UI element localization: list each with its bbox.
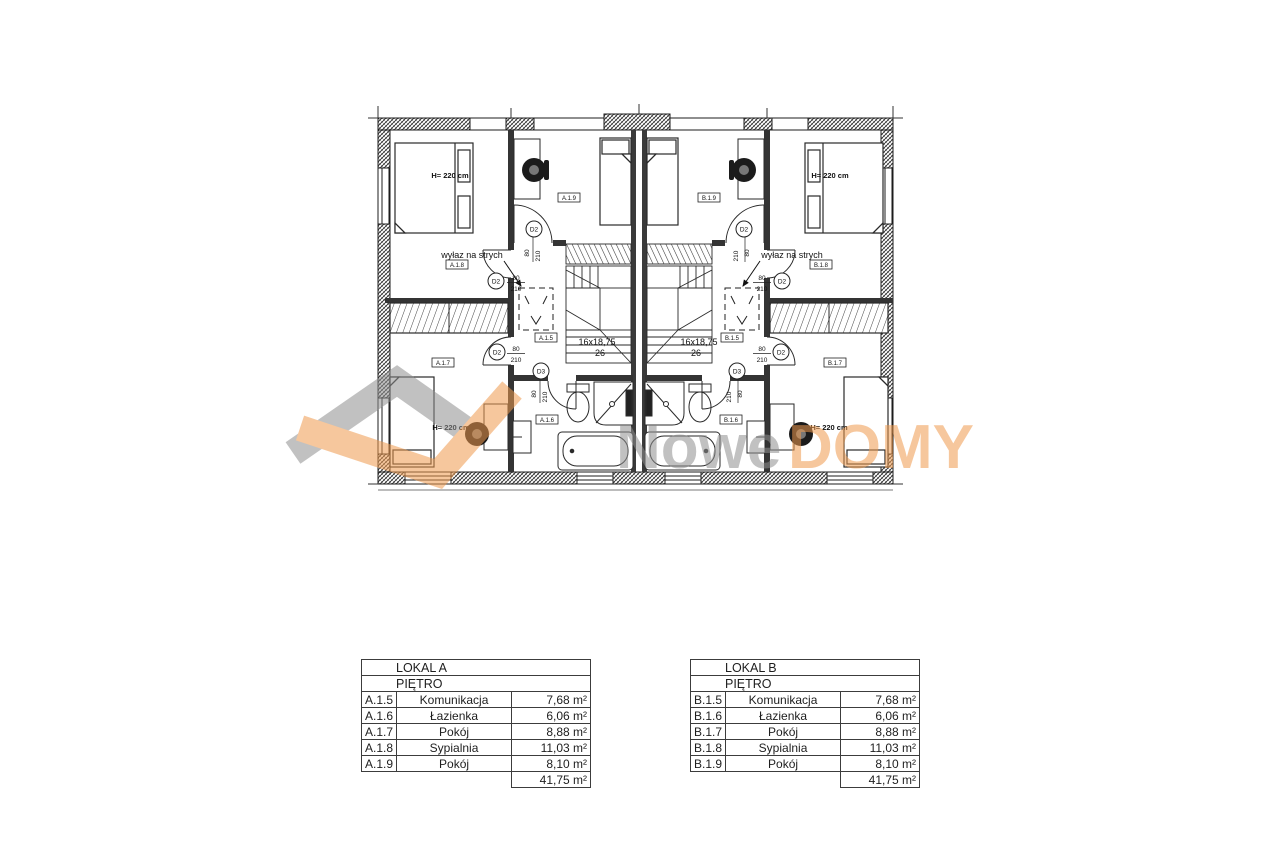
svg-text:D2: D2 (492, 279, 501, 286)
table-total-row: 41,75 m² (691, 772, 920, 788)
table-row: B.1.8 Sypialnia 11,03 m² (691, 740, 920, 756)
room-tag-a17: A.1.7 (432, 358, 454, 367)
stairs-width-a: 26 (595, 348, 605, 358)
room-area: 7,68 m² (512, 692, 591, 708)
area-table-lokal-a: LOKAL A PIĘTRO A.1.5 Komunikacja 7,68 m²… (361, 659, 591, 788)
door-tag-b16: D3 80 210 (726, 363, 745, 403)
table-row: A.1.9 Pokój 8,10 m² (362, 756, 591, 772)
table-a-floor: PIĘTRO (362, 676, 591, 692)
room-name: Sypialnia (397, 740, 512, 756)
table-row: A.1.6 Łazienka 6,06 m² (362, 708, 591, 724)
room-code: A.1.7 (362, 724, 397, 740)
double-bed-a (395, 143, 473, 233)
svg-text:D2: D2 (493, 350, 502, 357)
stairs-width-b: 26 (691, 348, 701, 358)
watermark-text-orange: DOMY (788, 413, 974, 482)
room-code: B.1.8 (691, 740, 726, 756)
table-b-floor: PIĘTRO (691, 676, 920, 692)
svg-text:210: 210 (726, 391, 733, 402)
table-a-title: LOKAL A (362, 660, 591, 676)
toilet-icon-a (567, 384, 589, 422)
svg-text:80: 80 (531, 390, 538, 398)
door-tag-b17: D2 80 210 (753, 344, 789, 364)
svg-text:A.1.5: A.1.5 (539, 336, 554, 342)
svg-text:80: 80 (512, 346, 520, 353)
table-row: B.1.7 Pokój 8,88 m² (691, 724, 920, 740)
room-tag-b15: B.1.5 (721, 333, 743, 342)
table-row: B.1.5 Komunikacja 7,68 m² (691, 692, 920, 708)
svg-text:210: 210 (733, 250, 740, 261)
door-tag-a16: D3 80 210 (531, 363, 549, 403)
cabinet-a (513, 421, 531, 453)
room-name: Pokój (397, 756, 512, 772)
attic-hatch-symbol-a (519, 288, 553, 330)
room-name: Komunikacja (397, 692, 512, 708)
wardrobe-a17 (390, 303, 508, 333)
table-b-title: LOKAL B (691, 660, 920, 676)
room-code: B.1.6 (691, 708, 726, 724)
room-area: 6,06 m² (841, 708, 920, 724)
svg-text:B.1.9: B.1.9 (702, 196, 717, 202)
attic-hatch-symbol-b (725, 288, 759, 330)
door-tag-a17: D2 80 210 (489, 344, 525, 364)
double-bed-b (805, 143, 883, 233)
total-area: 41,75 m² (512, 772, 591, 788)
window-left-top (378, 168, 390, 224)
window-bottom-a2 (577, 472, 613, 484)
single-bed-b19 (647, 138, 678, 225)
stairs-spec-b: 16x18,75 (680, 337, 717, 347)
room-name: Pokój (726, 724, 841, 740)
table-row: A.1.5 Komunikacja 7,68 m² (362, 692, 591, 708)
bed-height-a18: H= 220 cm (431, 171, 469, 180)
svg-text:B.1.8: B.1.8 (814, 263, 829, 269)
area-table-lokal-b: LOKAL B PIĘTRO B.1.5 Komunikacja 7,68 m²… (690, 659, 920, 788)
svg-text:210: 210 (542, 391, 549, 402)
room-name: Sypialnia (726, 740, 841, 756)
room-tag-a16: A.1.6 (536, 415, 558, 424)
svg-text:D2: D2 (777, 350, 786, 357)
office-chair-b19 (729, 158, 756, 182)
svg-text:210: 210 (535, 250, 542, 261)
room-code: A.1.5 (362, 692, 397, 708)
svg-text:210: 210 (511, 357, 522, 364)
room-area: 11,03 m² (512, 740, 591, 756)
svg-text:A.1.6: A.1.6 (540, 418, 555, 424)
svg-text:80: 80 (758, 275, 766, 282)
room-area: 8,10 m² (512, 756, 591, 772)
bed-height-b18: H= 220 cm (811, 171, 849, 180)
svg-text:D2: D2 (740, 227, 749, 234)
svg-text:80: 80 (524, 249, 531, 257)
single-bed-a19 (600, 138, 631, 225)
office-chair-a19 (522, 158, 549, 182)
svg-text:A.1.7: A.1.7 (436, 361, 451, 367)
svg-text:210: 210 (757, 286, 768, 293)
svg-text:210: 210 (511, 286, 522, 293)
table-total-row: 41,75 m² (362, 772, 591, 788)
svg-text:D3: D3 (733, 369, 742, 376)
watermark-text-gray: Nowe (616, 413, 781, 482)
table-row: A.1.7 Pokój 8,88 m² (362, 724, 591, 740)
wardrobe-b17 (770, 303, 888, 333)
room-tag-b18: B.1.8 (810, 260, 832, 269)
total-area: 41,75 m² (841, 772, 920, 788)
svg-text:D3: D3 (537, 369, 546, 376)
room-code: A.1.6 (362, 708, 397, 724)
svg-text:A.1.9: A.1.9 (562, 196, 577, 202)
room-code: B.1.7 (691, 724, 726, 740)
attic-label-a: wyłaz na strych (440, 250, 503, 260)
room-area: 11,03 m² (841, 740, 920, 756)
table-row: B.1.9 Pokój 8,10 m² (691, 756, 920, 772)
room-tag-b19: B.1.9 (698, 193, 720, 202)
door-tag-a19: D2 80 210 (524, 221, 542, 262)
svg-text:80: 80 (512, 275, 520, 282)
room-area: 7,68 m² (841, 692, 920, 708)
attic-label-b: wyłaz na strych (760, 250, 823, 260)
room-area: 8,10 m² (841, 756, 920, 772)
room-area: 8,88 m² (512, 724, 591, 740)
room-tag-a18: A.1.8 (446, 260, 468, 269)
room-area: 6,06 m² (512, 708, 591, 724)
room-name: Pokój (726, 756, 841, 772)
svg-text:A.1.8: A.1.8 (450, 263, 465, 269)
floor-plan-drawing: 16x18,75 26 16x18,75 26 wyłaz na strych … (270, 100, 1000, 500)
svg-text:D2: D2 (778, 279, 787, 286)
room-code: A.1.8 (362, 740, 397, 756)
svg-text:80: 80 (758, 346, 766, 353)
svg-text:B.1.5: B.1.5 (725, 336, 740, 342)
stairs-spec-a: 16x18,75 (578, 337, 615, 347)
table-row: B.1.6 Łazienka 6,06 m² (691, 708, 920, 724)
page: { "plan": { "attic_text": "wyłaz na stry… (0, 0, 1280, 854)
room-tag-a15: A.1.5 (535, 333, 557, 342)
door-tag-b19: D2 80 210 (733, 221, 752, 262)
room-tag-a19: A.1.9 (558, 193, 580, 202)
door-tag-b18: D2 80 210 (753, 273, 790, 293)
svg-text:210: 210 (757, 357, 768, 364)
svg-text:B.1.7: B.1.7 (828, 361, 843, 367)
room-name: Łazienka (397, 708, 512, 724)
room-name: Komunikacja (726, 692, 841, 708)
room-area: 8,88 m² (841, 724, 920, 740)
room-tag-b17: B.1.7 (824, 358, 846, 367)
room-name: Pokój (397, 724, 512, 740)
table-row: A.1.8 Sypialnia 11,03 m² (362, 740, 591, 756)
svg-text:D2: D2 (530, 227, 539, 234)
room-code: B.1.9 (691, 756, 726, 772)
room-name: Łazienka (726, 708, 841, 724)
room-code: A.1.9 (362, 756, 397, 772)
room-code: B.1.5 (691, 692, 726, 708)
